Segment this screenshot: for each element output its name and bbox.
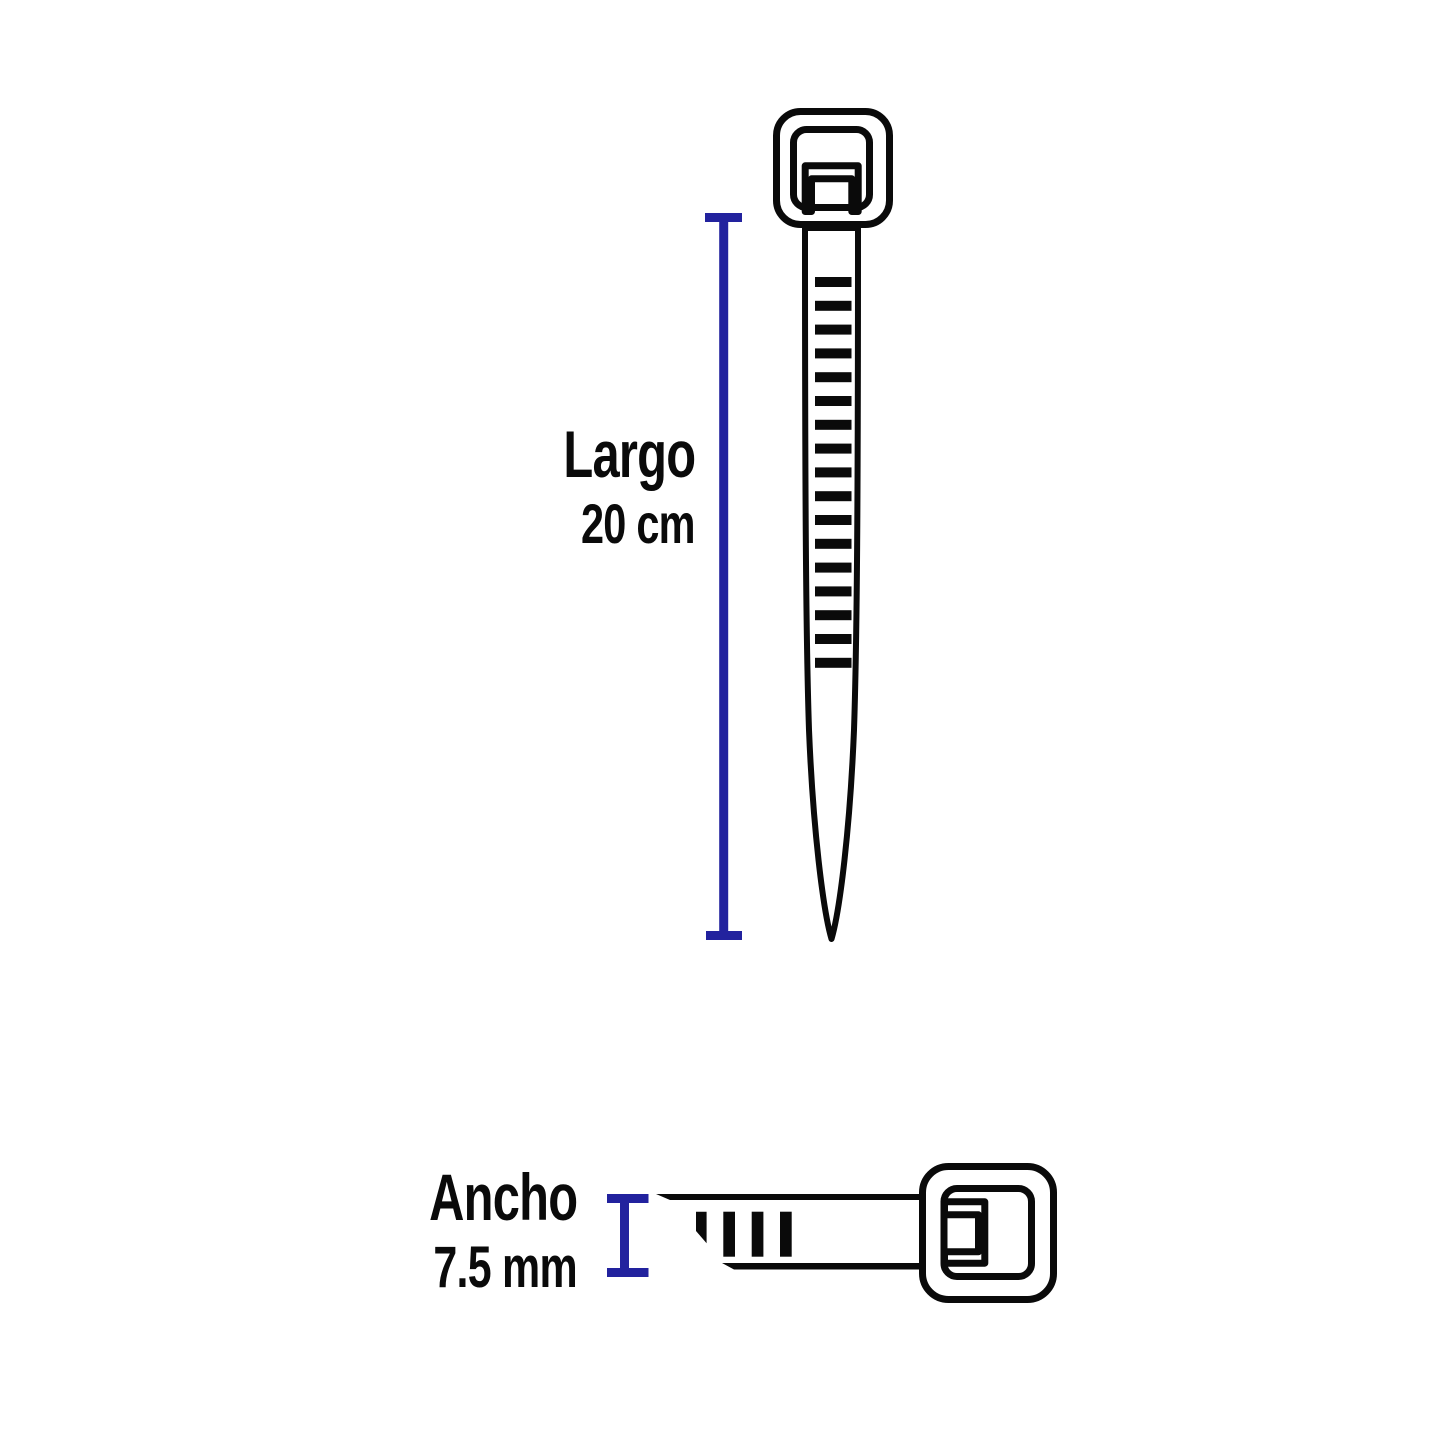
strap-tooth bbox=[815, 420, 852, 430]
length-value: 20 cm bbox=[581, 496, 695, 552]
strap-tooth bbox=[815, 325, 852, 335]
length-dimension-line bbox=[705, 218, 742, 936]
strap-tooth bbox=[723, 1212, 735, 1257]
strap-tooth bbox=[815, 372, 852, 382]
width-label: Ancho bbox=[429, 1164, 577, 1230]
strap-tooth bbox=[815, 491, 852, 501]
strap-tooth bbox=[815, 301, 852, 311]
strap-tooth bbox=[815, 563, 852, 573]
strap-tooth bbox=[752, 1212, 764, 1257]
horizontal-cable-tie bbox=[656, 1167, 1054, 1300]
strap-tooth bbox=[815, 539, 852, 549]
strap-tooth bbox=[815, 277, 852, 287]
strap-tooth bbox=[815, 348, 852, 358]
tie-strap bbox=[805, 228, 858, 939]
width-value: 7.5 mm bbox=[434, 1239, 577, 1297]
width-dimension-line bbox=[607, 1199, 649, 1273]
vertical-cable-tie bbox=[777, 112, 890, 940]
strap-tooth bbox=[815, 610, 852, 620]
strap-tooth bbox=[780, 1212, 792, 1257]
strap-tooth bbox=[815, 396, 852, 406]
strap-tooth bbox=[815, 634, 852, 644]
strap-bottom-edge bbox=[722, 1263, 923, 1270]
strap-top-edge bbox=[656, 1194, 923, 1200]
strap-tooth bbox=[815, 467, 852, 477]
strap-tooth bbox=[815, 444, 852, 454]
strap-tooth bbox=[696, 1212, 707, 1244]
cable-tie-diagram bbox=[0, 0, 1445, 1445]
length-label: Largo bbox=[563, 421, 695, 487]
strap-tooth bbox=[815, 515, 852, 525]
strap-tooth bbox=[815, 586, 852, 596]
strap-tooth bbox=[815, 658, 852, 668]
strap-teeth bbox=[696, 1212, 792, 1257]
cable-tie-dimension-diagram: Largo 20 cm Ancho 7.5 mm bbox=[0, 0, 1445, 1445]
